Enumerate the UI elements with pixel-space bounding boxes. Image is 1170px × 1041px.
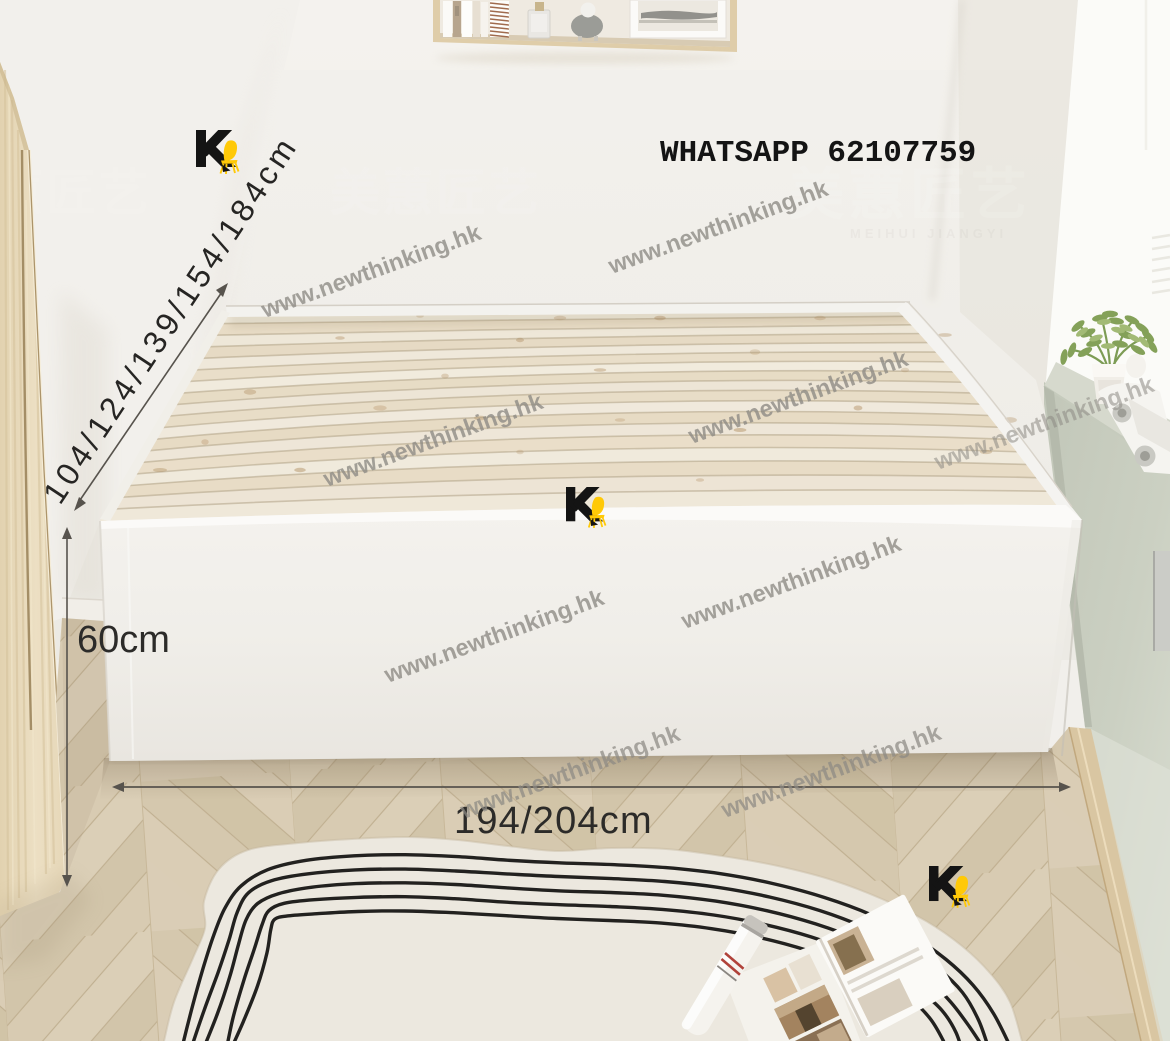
svg-text:美蕙匠艺: 美蕙匠艺 <box>330 165 542 221</box>
svg-text:60cm: 60cm <box>77 619 170 661</box>
svg-text:MEIHUI JIANGYI: MEIHUI JIANGYI <box>850 226 1007 241</box>
svg-text:WHATSAPP 62107759: WHATSAPP 62107759 <box>660 136 976 171</box>
